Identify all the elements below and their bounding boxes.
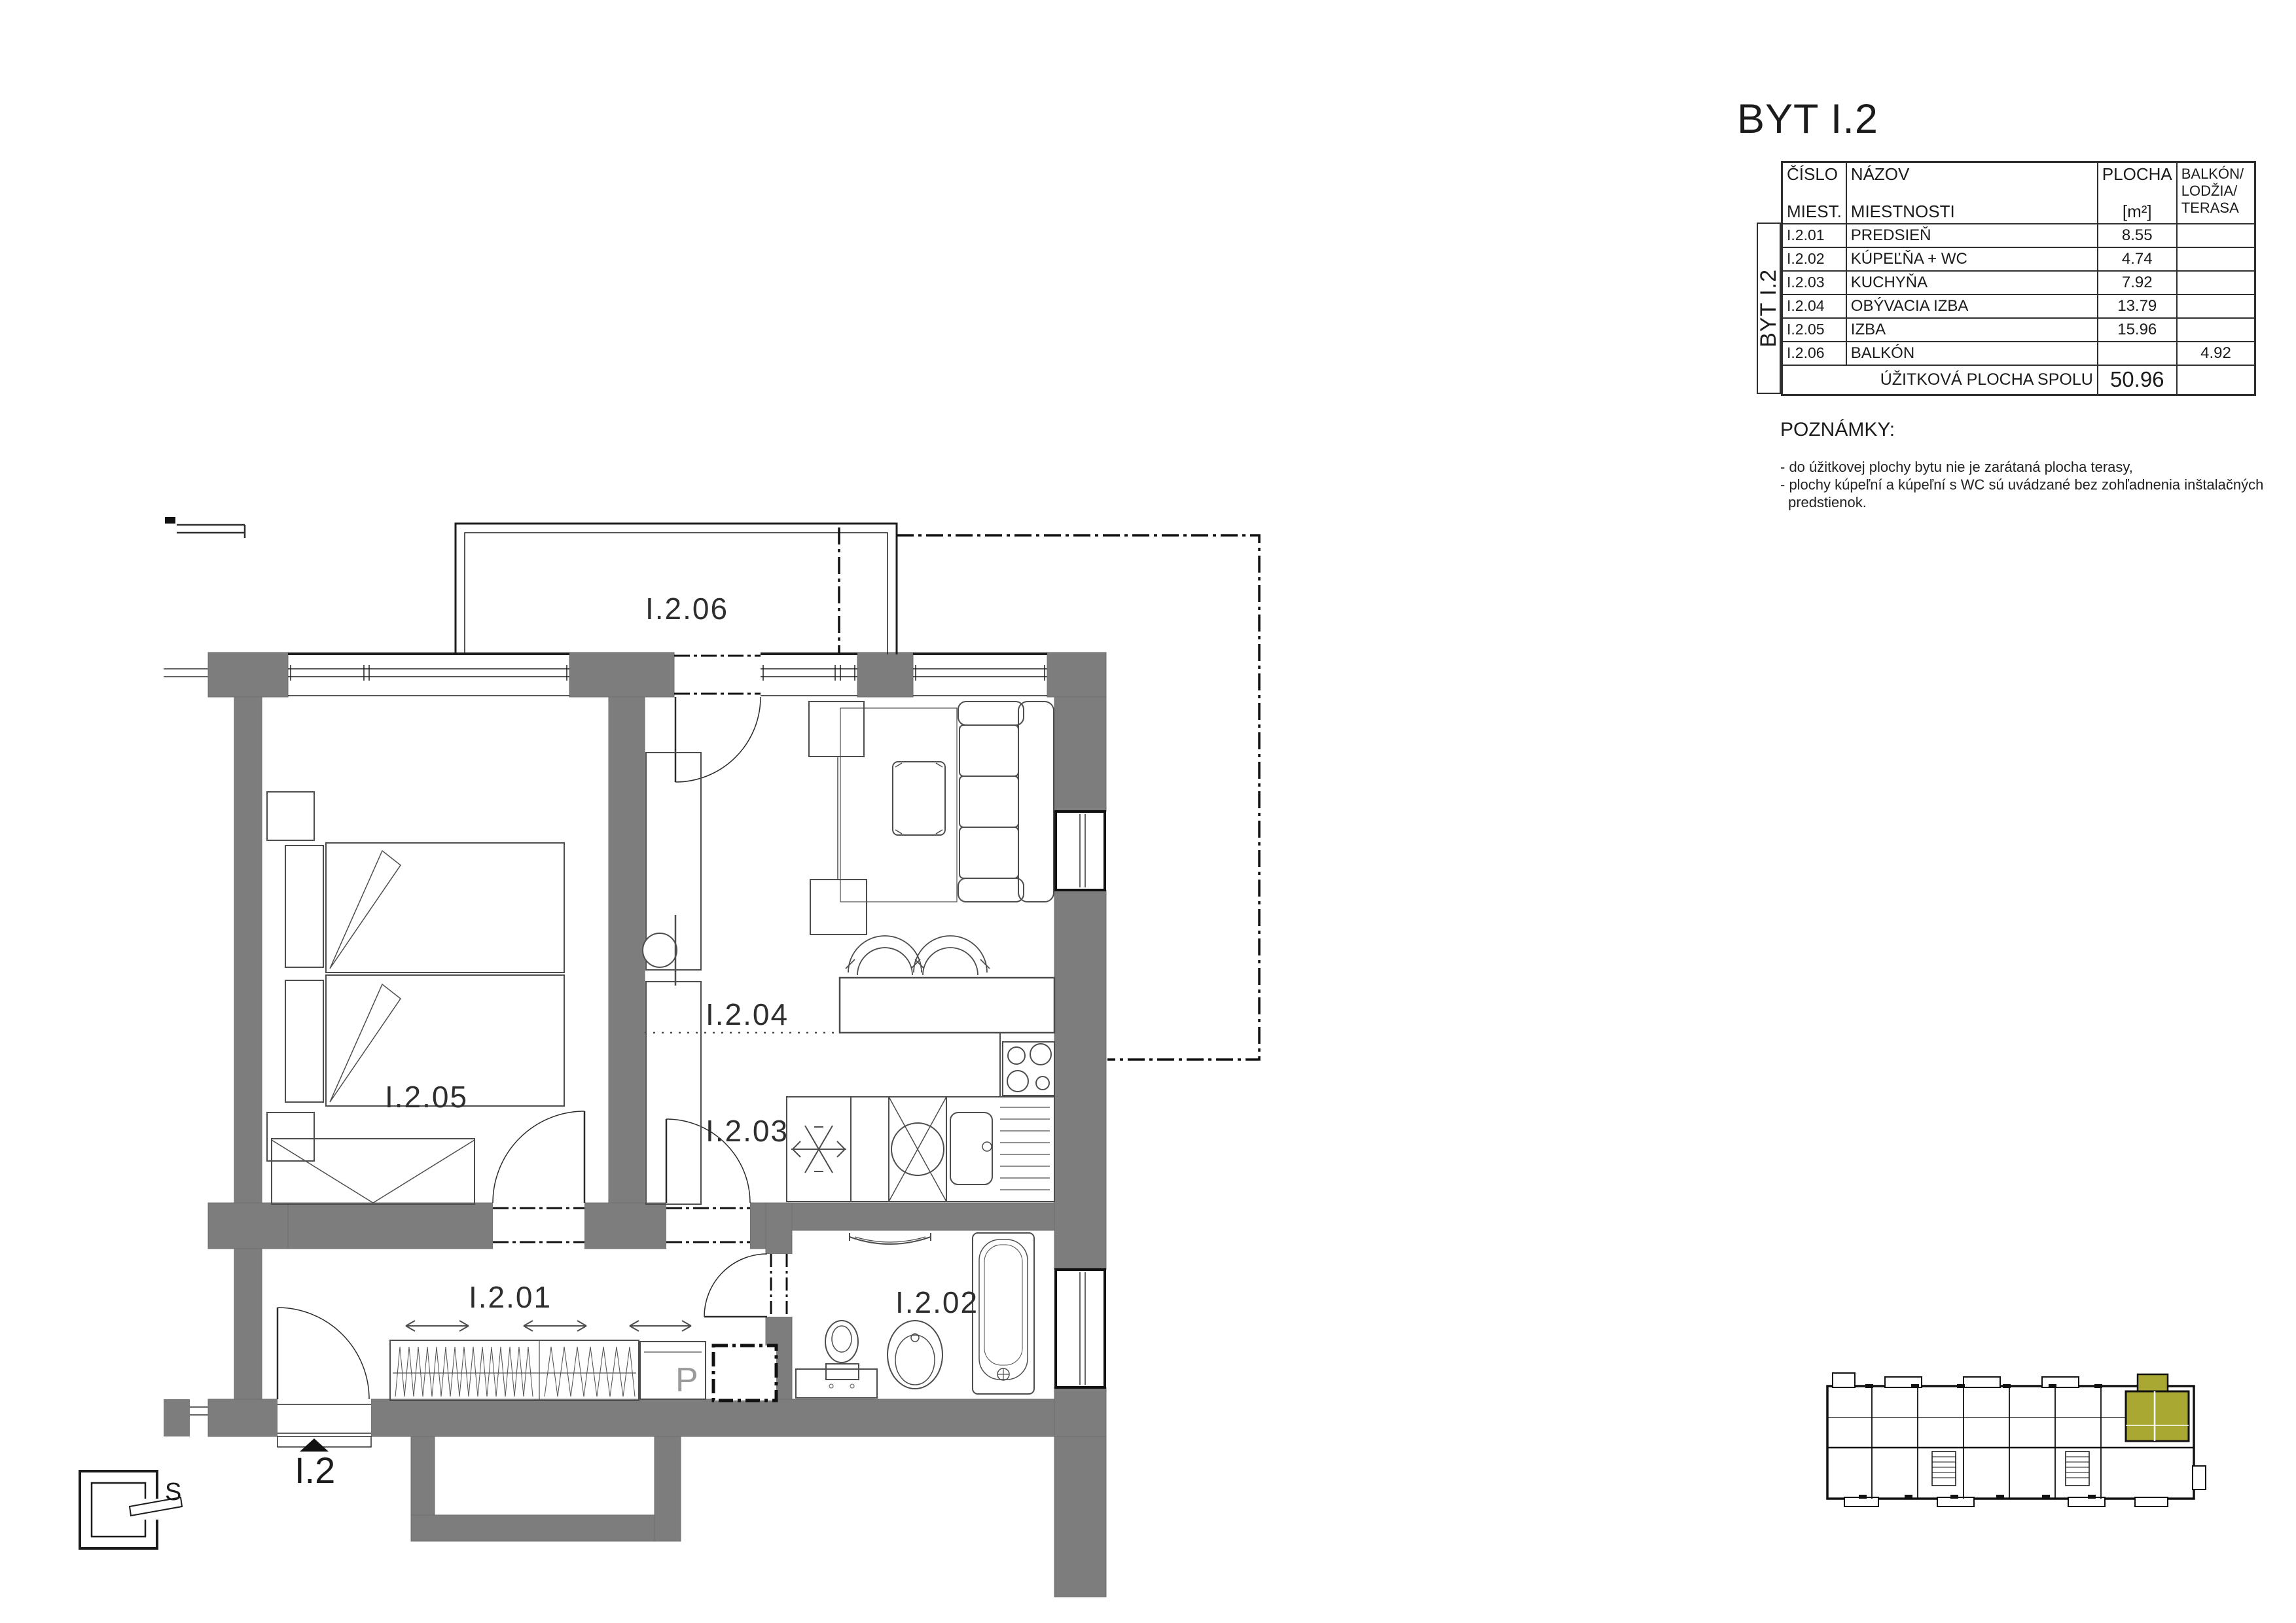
header-balkon-line2: LODŽIA/ — [2181, 183, 2251, 200]
nightstand — [267, 1113, 314, 1161]
room-number: I.2.01 — [1782, 224, 1846, 247]
wall-middle-b — [584, 1203, 666, 1249]
neighbor-wall-tick — [165, 517, 175, 524]
header-balkon-line3: TERASA — [2181, 200, 2251, 217]
room-balcony-area — [2177, 224, 2255, 247]
label-balcony: I.2.06 — [645, 592, 728, 626]
room-area — [2098, 342, 2177, 365]
bath-cabinet — [796, 1369, 877, 1398]
wall-bathroom-top — [792, 1203, 1054, 1230]
header-nazov-line1: NÁZOV — [1851, 166, 2093, 183]
room-area: 15.96 — [2098, 318, 2177, 342]
hangers — [545, 1347, 635, 1397]
header-cislo-line1: ČÍSLO — [1787, 166, 1842, 183]
furniture-hall — [390, 1321, 706, 1400]
wall-right-c — [1054, 1387, 1106, 1436]
kitchen-cabinet — [851, 1097, 889, 1202]
table-row: I.2.06 BALKÓN 4.92 — [1782, 342, 2255, 365]
snowflake-icon — [791, 1126, 846, 1173]
wall-right-a — [1054, 697, 1106, 811]
page-title: BYT I.2 — [1737, 96, 1878, 143]
furniture-bedroom — [267, 792, 564, 1204]
table-side-label: BYT I.2 — [1757, 223, 1781, 394]
table-header-row: ČÍSLO MIEST. NÁZOV MIESTNOSTI PLOCHA [m²… — [1782, 162, 2255, 224]
room-area: 7.92 — [2098, 271, 2177, 294]
nightstand — [267, 792, 314, 840]
installation-shaft — [713, 1346, 776, 1400]
walls — [208, 652, 1106, 1597]
armchair — [810, 880, 867, 935]
bathroom-door — [704, 1254, 792, 1317]
keyplan-highlight-unit — [2126, 1374, 2189, 1441]
key-plan — [1827, 1373, 2206, 1507]
wall-left — [234, 697, 262, 1399]
table-total-row: ÚŽITKOVÁ PLOCHA SPOLU 50.96 — [1782, 365, 2255, 395]
room-balcony-area — [2177, 247, 2255, 271]
label-hall: I.2.01 — [469, 1280, 552, 1314]
room-name: KUCHYŇA — [1846, 271, 2098, 294]
washbasin — [888, 1321, 942, 1389]
room-name: PREDSIEŇ — [1846, 224, 2098, 247]
entrance-label: I.2 — [295, 1450, 335, 1491]
room-name: BALKÓN — [1846, 342, 2098, 365]
bar-stool — [911, 936, 990, 975]
room-name: IZBA — [1846, 318, 2098, 342]
wall-top-pier-3 — [857, 652, 913, 697]
label-bedroom: I.2.05 — [385, 1080, 468, 1114]
washer-letter: P — [675, 1361, 698, 1399]
entrance-door — [278, 1308, 371, 1447]
room-balcony-area — [2177, 294, 2255, 318]
bed-pillow — [285, 980, 323, 1102]
total-label: ÚŽITKOVÁ PLOCHA SPOLU — [1782, 365, 2098, 395]
bathtub — [973, 1233, 1034, 1394]
label-bathroom: I.2.02 — [895, 1285, 978, 1319]
wall-bottom-b — [371, 1399, 1054, 1436]
hangers — [395, 1347, 533, 1397]
rug — [840, 708, 957, 902]
label-kitchen: I.2.03 — [706, 1114, 789, 1148]
room-area: 4.74 — [2098, 247, 2177, 271]
sink-unit — [946, 1097, 1054, 1202]
table-row: I.2.02 KÚPEĽŇA + WC 4.74 — [1782, 247, 2255, 271]
room-area: 13.79 — [2098, 294, 2177, 318]
note-line: - do úžitkovej plochy bytu nie je zaráta… — [1780, 458, 2291, 476]
header-cislo: ČÍSLO MIEST. — [1782, 162, 1846, 224]
notes-block: POZNÁMKY: - do úžitkovej plochy bytu nie… — [1780, 419, 2291, 511]
wall-top-right-corner — [1047, 652, 1106, 697]
wall-middle-a — [288, 1203, 493, 1249]
armchair — [809, 702, 864, 757]
total-value: 50.96 — [2098, 365, 2177, 395]
dishwasher — [889, 1097, 946, 1202]
boundary-dashdot — [839, 527, 1259, 1060]
area-table: ČÍSLO MIEST. NÁZOV MIESTNOSTI PLOCHA [m²… — [1781, 161, 2256, 396]
header-plocha: PLOCHA [m²] — [2098, 162, 2177, 224]
room-number: I.2.03 — [1782, 271, 1846, 294]
room-number: I.2.04 — [1782, 294, 1846, 318]
table-row: I.2.03 KUCHYŇA 7.92 — [1782, 271, 2255, 294]
header-balkon: BALKÓN/ LODŽIA/ TERASA — [2177, 162, 2255, 224]
compass: S — [80, 1471, 182, 1548]
toilet — [825, 1321, 859, 1388]
wall-mid-left-junction — [208, 1203, 288, 1249]
header-plocha-line1: PLOCHA — [2102, 166, 2172, 183]
wall-right-extension — [1054, 1436, 1106, 1597]
bedroom-door — [493, 1111, 584, 1249]
bed-pillow — [285, 846, 323, 967]
room-number: I.2.06 — [1782, 342, 1846, 365]
header-nazov: NÁZOV MIESTNOSTI — [1846, 162, 2098, 224]
table-row: I.2.04 OBÝVACIA IZBA 13.79 — [1782, 294, 2255, 318]
blanket-fold — [330, 851, 401, 969]
side-label-text: BYT I.2 — [1756, 269, 1782, 348]
sofa — [958, 702, 1054, 902]
furniture-kitchen — [787, 1033, 1054, 1202]
table-row: I.2.01 PREDSIEŇ 8.55 — [1782, 224, 2255, 247]
bed-mattress — [326, 843, 564, 972]
table-row: I.2.05 IZBA 15.96 — [1782, 318, 2255, 342]
corridor-stub-b — [655, 1436, 681, 1541]
header-cislo-line2: MIEST. — [1787, 203, 1842, 221]
hob — [1003, 1042, 1054, 1096]
wall-bathroom-left-a — [766, 1203, 792, 1254]
corridor-bar — [411, 1515, 681, 1541]
bar-counter — [840, 978, 1054, 1033]
room-balcony-area — [2177, 271, 2255, 294]
room-area: 8.55 — [2098, 224, 2177, 247]
label-living: I.2.04 — [706, 997, 789, 1031]
balcony-door — [674, 656, 761, 782]
wall-bottom-a — [208, 1399, 278, 1436]
wall-partition-bedroom-living — [609, 697, 645, 1203]
doors — [278, 656, 792, 1447]
balcony-railing — [456, 524, 897, 654]
wall-top-left-pier — [208, 652, 288, 697]
header-balkon-line1: BALKÓN/ — [2181, 166, 2251, 183]
room-labels: I.2.06 I.2.05 I.2.04 I.2.03 I.2.01 I.2.0… — [385, 592, 978, 1399]
room-name: KÚPEĽŇA + WC — [1846, 247, 2098, 271]
coffee-table — [893, 762, 945, 835]
wall-right-b — [1054, 890, 1106, 1270]
towel-rail — [850, 1233, 931, 1244]
sliding-arrows — [406, 1321, 691, 1331]
note-line: predstienok. — [1780, 493, 2291, 511]
header-plocha-line2: [m²] — [2123, 203, 2152, 221]
bar-stool — [846, 936, 924, 975]
room-name: OBÝVACIA IZBA — [1846, 294, 2098, 318]
notes-title: POZNÁMKY: — [1780, 419, 2291, 441]
header-nazov-line2: MIESTNOSTI — [1851, 203, 2093, 221]
room-balcony-area — [2177, 318, 2255, 342]
room-balcony-area: 4.92 — [2177, 342, 2255, 365]
note-line: - plochy kúpeľní a kúpeľní s WC sú uvádz… — [1780, 476, 2291, 493]
tv-cabinet — [646, 982, 701, 1204]
floorplan-sheet: { "title": "BYT I.2", "table": { "header… — [0, 0, 2296, 1623]
compass-letter: S — [165, 1478, 181, 1506]
room-number: I.2.02 — [1782, 247, 1846, 271]
room-number: I.2.05 — [1782, 318, 1846, 342]
wall-top-pier-2 — [569, 652, 674, 697]
tv-icon — [643, 933, 677, 967]
total-balcony-empty — [2177, 365, 2255, 395]
dresser — [272, 1139, 475, 1204]
